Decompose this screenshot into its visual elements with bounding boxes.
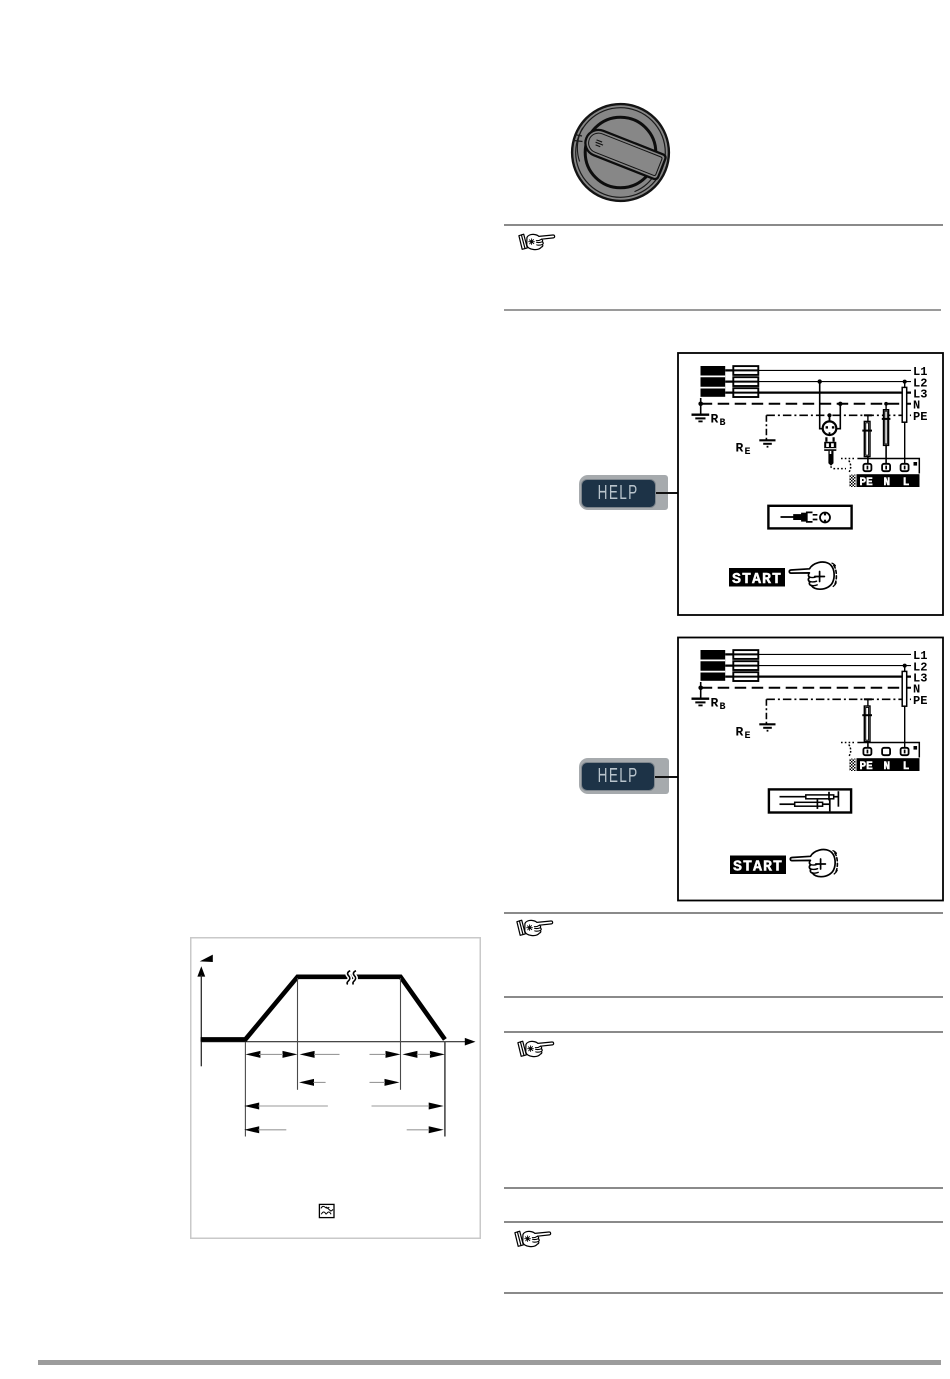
svg-text:N: N <box>884 761 891 773</box>
svg-text:B: B <box>720 702 726 713</box>
svg-text:START: START <box>733 859 783 876</box>
svg-text:START: START <box>732 571 782 588</box>
svg-text:R: R <box>736 441 744 456</box>
svg-text:R: R <box>736 725 744 740</box>
svg-text:PE: PE <box>913 410 927 424</box>
svg-text:L: L <box>903 477 910 489</box>
svg-text:L: L <box>903 761 910 773</box>
svg-text:B: B <box>720 418 726 429</box>
svg-text:PE: PE <box>913 694 927 708</box>
svg-text:R: R <box>711 696 719 711</box>
svg-text:N: N <box>884 477 891 489</box>
svg-text:PE: PE <box>860 477 874 489</box>
svg-text:PE: PE <box>860 761 874 773</box>
svg-text:R: R <box>711 412 719 427</box>
svg-text:E: E <box>745 447 751 458</box>
svg-text:E: E <box>745 731 751 742</box>
